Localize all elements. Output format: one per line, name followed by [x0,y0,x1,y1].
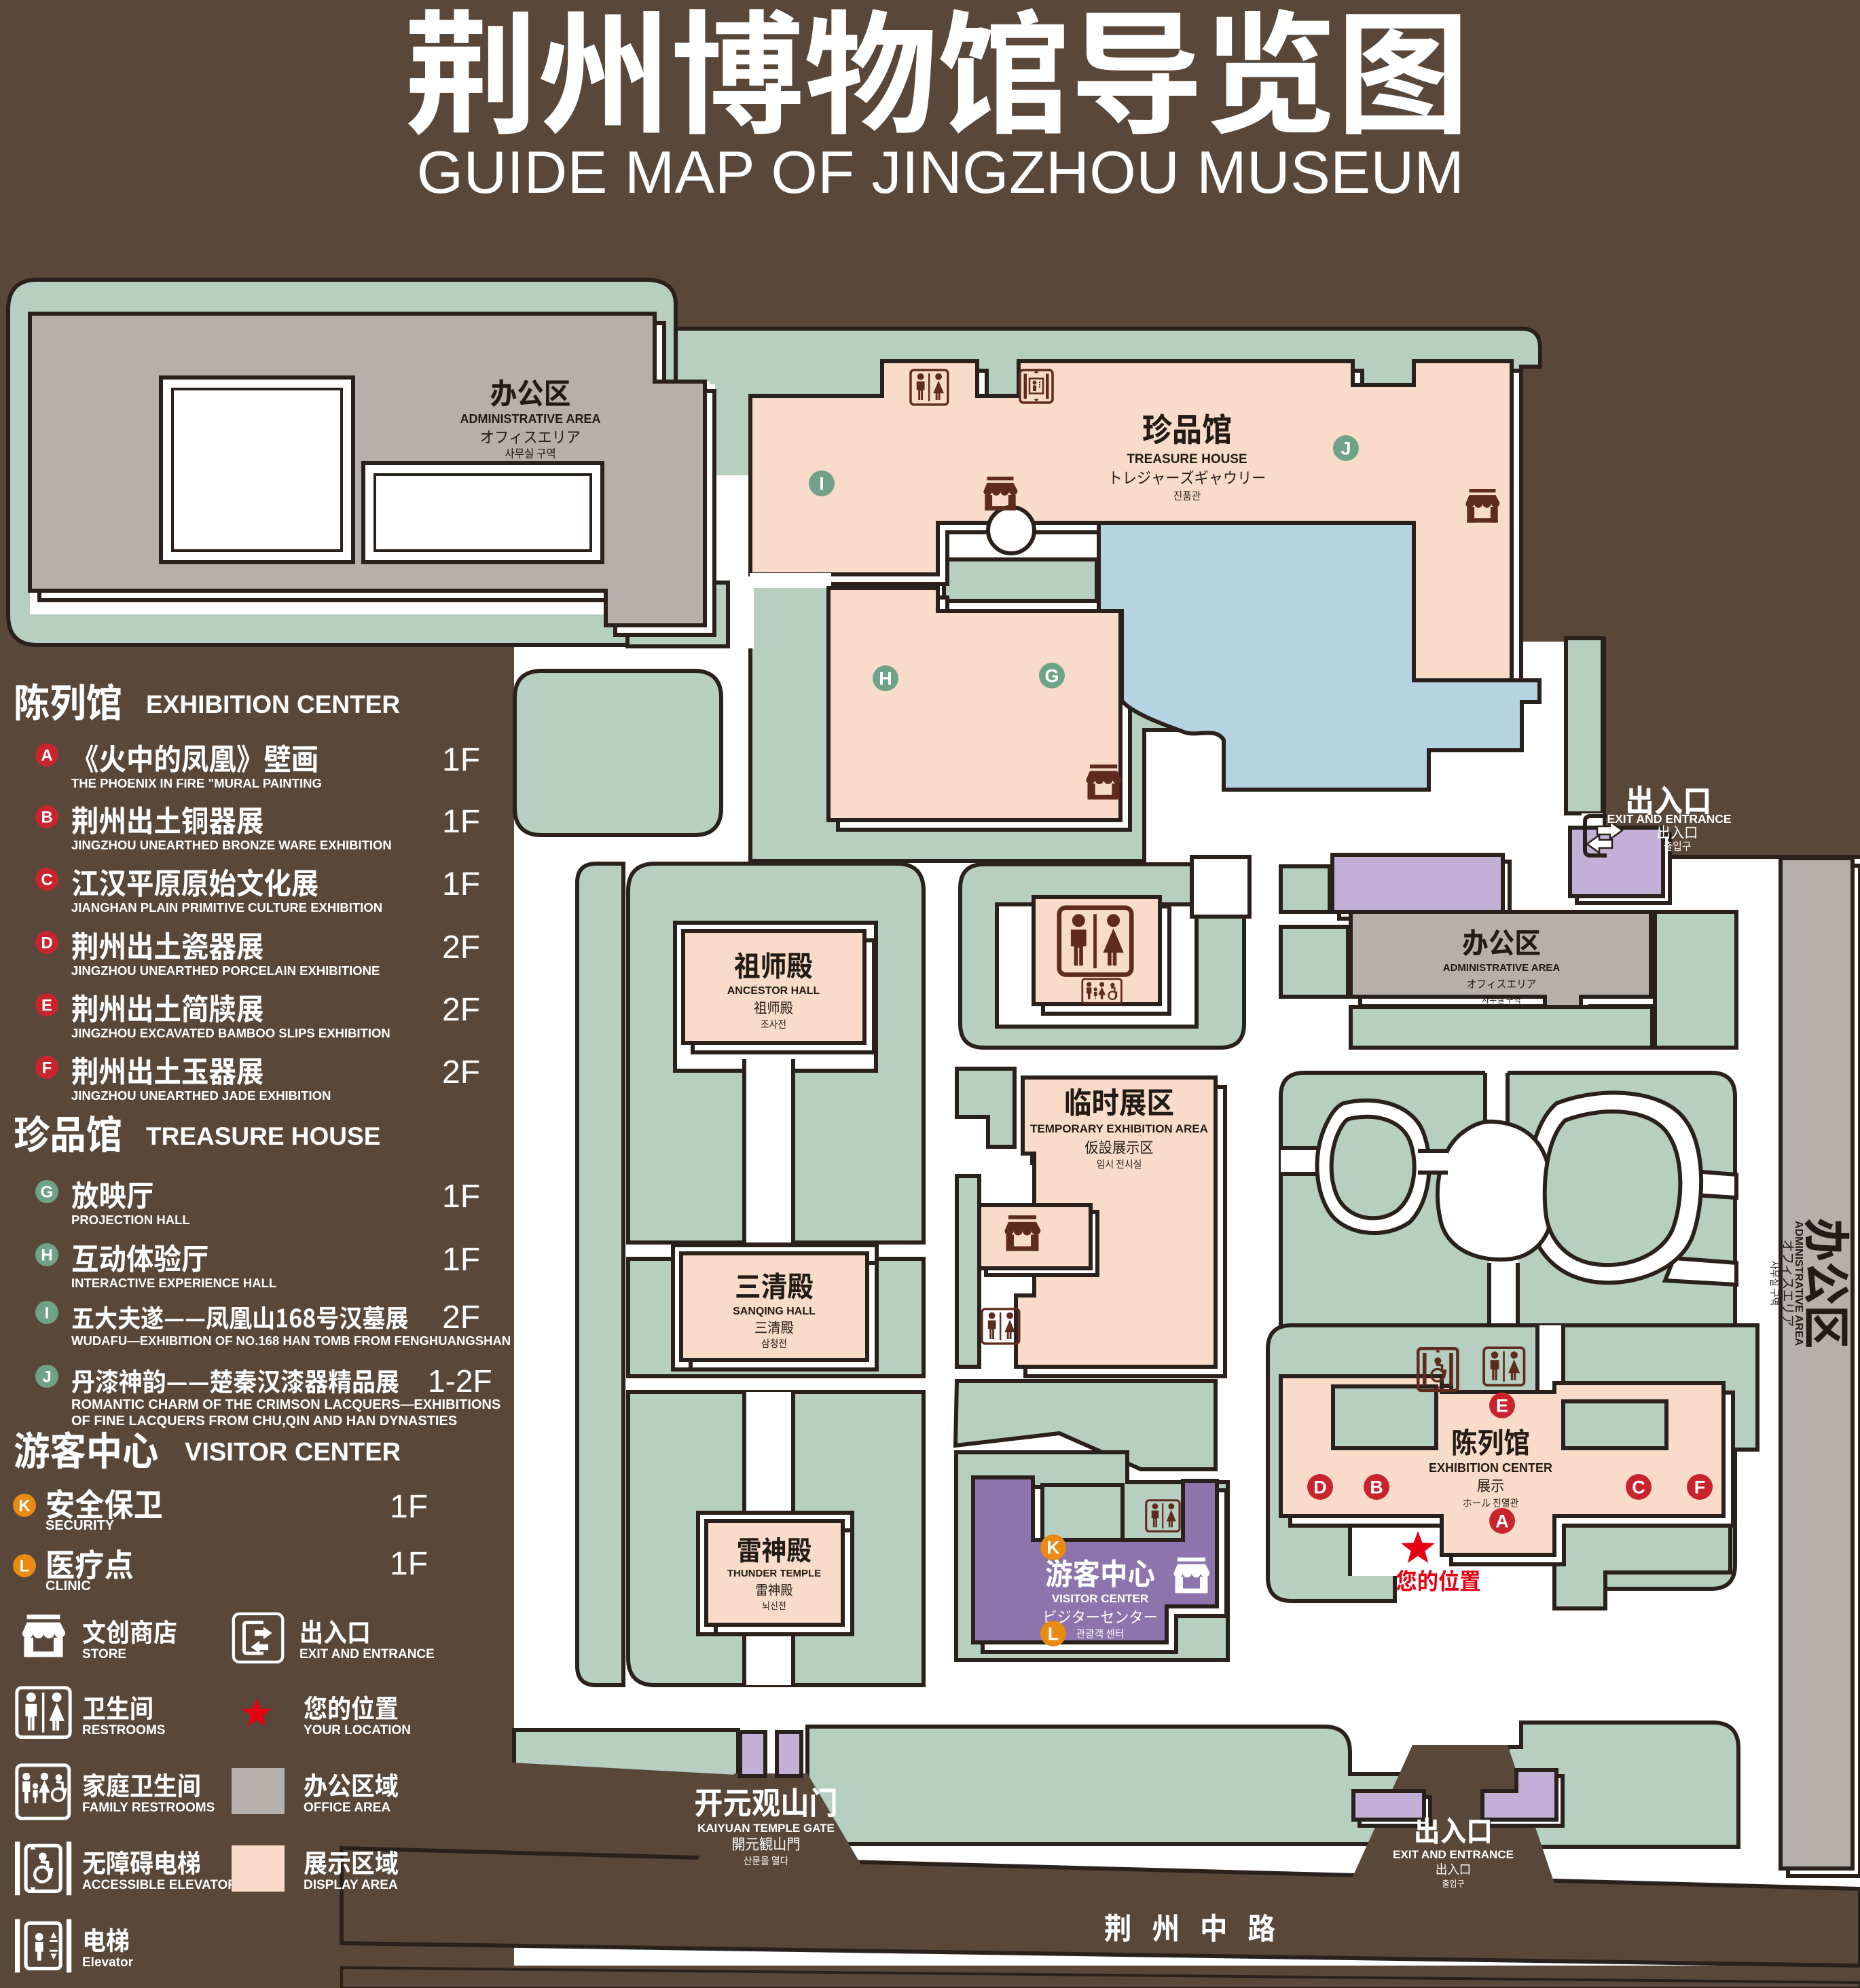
svg-text:K: K [18,1496,31,1515]
svg-text:YOUR LOCATION: YOUR LOCATION [304,1723,411,1737]
svg-text:EXIT AND ENTRANCE: EXIT AND ENTRANCE [1393,1848,1514,1861]
svg-text:I: I [45,1304,50,1322]
svg-text:ADMINISTRATIVE AREA: ADMINISTRATIVE AREA [460,412,601,426]
svg-text:JINGZHOU UNEARTHED BRONZE WARE: JINGZHOU UNEARTHED BRONZE WARE EXHIBITIO… [71,838,392,852]
svg-text:ACCESSIBLE ELEVATOR: ACCESSIBLE ELEVATOR [82,1878,237,1892]
svg-text:F: F [42,1059,52,1077]
svg-text:STORE: STORE [82,1647,126,1661]
svg-text:1F: 1F [442,1179,480,1215]
svg-text:EXIT AND ENTRANCE: EXIT AND ENTRANCE [299,1647,435,1661]
svg-text:RESTROOMS: RESTROOMS [82,1723,165,1737]
svg-text:ADMINISTRATIVE AREA: ADMINISTRATIVE AREA [1443,962,1561,974]
svg-text:THUNDER TEMPLE: THUNDER TEMPLE [727,1568,821,1579]
svg-text:TEMPORARY EXHIBITION AREA: TEMPORARY EXHIBITION AREA [1030,1122,1208,1135]
svg-text:KAIYUAN TEMPLE GATE: KAIYUAN TEMPLE GATE [697,1822,835,1835]
svg-text:JIANGHAN PLAIN PRIMITIVE CULTU: JIANGHAN PLAIN PRIMITIVE CULTURE EXHIBIT… [71,900,382,915]
svg-text:OFFICE AREA: OFFICE AREA [304,1801,390,1815]
svg-text:INTERACTIVE EXPERIENCE HALL: INTERACTIVE EXPERIENCE HALL [71,1276,276,1290]
svg-text:H: H [879,668,892,688]
svg-text:ANCESTOR HALL: ANCESTOR HALL [727,985,820,997]
svg-text:2F: 2F [442,992,480,1028]
svg-text:ROMANTIC CHARM OF THE CRIMSON: ROMANTIC CHARM OF THE CRIMSON LACQUERS—E… [71,1397,500,1412]
svg-text:WUDAFU—EXHIBITION OF NO.168 HA: WUDAFU—EXHIBITION OF NO.168 HAN TOMB FRO… [71,1333,511,1348]
svg-text:G: G [1044,665,1059,686]
svg-text:JINGZHOU UNEARTHED PORCELAIN E: JINGZHOU UNEARTHED PORCELAIN EXHIBITIONE [71,963,380,978]
svg-text:JINGZHOU EXCAVATED BAMBOO SLIP: JINGZHOU EXCAVATED BAMBOO SLIPS EXHIBITI… [71,1026,390,1040]
svg-text:Elevator: Elevator [82,1955,134,1970]
svg-text:L: L [1048,1623,1059,1644]
svg-text:SECURITY: SECURITY [45,1518,115,1533]
svg-text:1F: 1F [442,742,480,778]
svg-text:J: J [42,1367,51,1386]
svg-text:A: A [1495,1511,1509,1531]
svg-text:SANQING HALL: SANQING HALL [733,1306,816,1317]
svg-text:1F: 1F [442,866,480,902]
svg-text:1-2F: 1-2F [428,1363,492,1399]
svg-text:1F: 1F [390,1489,428,1525]
svg-text:PROJECTION HALL: PROJECTION HALL [71,1213,190,1227]
svg-text:TREASURE HOUSE: TREASURE HOUSE [1127,452,1247,466]
svg-text:THE PHOENIX IN FIRE "MURAL PAI: THE PHOENIX IN FIRE "MURAL PAINTING [71,776,322,790]
svg-text:GUIDE MAP OF JINGZHOU MUSEUM: GUIDE MAP OF JINGZHOU MUSEUM [417,139,1465,206]
svg-text:L: L [20,1557,30,1575]
svg-text:F: F [1694,1477,1706,1497]
svg-text:1F: 1F [390,1546,428,1582]
svg-text:ADMINISTRATIVE AREA: ADMINISTRATIVE AREA [1793,1221,1804,1346]
svg-text:H: H [41,1246,52,1264]
svg-text:2F: 2F [442,929,480,965]
svg-text:J: J [1341,438,1351,458]
svg-text:2F: 2F [442,1300,480,1336]
svg-text:EXHIBITION CENTER: EXHIBITION CENTER [146,691,400,718]
svg-text:OF FINE LACQUERS FROM CHU,QIN: OF FINE LACQUERS FROM CHU,QIN AND HAN DY… [71,1414,457,1429]
svg-text:TREASURE HOUSE: TREASURE HOUSE [146,1122,380,1150]
svg-text:K: K [1046,1537,1060,1558]
svg-text:G: G [41,1183,54,1201]
svg-text:A: A [41,746,52,765]
svg-text:E: E [1496,1395,1508,1416]
svg-text:VISITOR CENTER: VISITOR CENTER [1052,1592,1148,1605]
svg-text:B: B [41,808,52,826]
svg-text:1F: 1F [442,1242,480,1278]
svg-text:B: B [1370,1477,1383,1497]
svg-text:VISITOR CENTER: VISITOR CENTER [185,1438,401,1467]
svg-text:1F: 1F [442,804,480,840]
svg-text:DISPLAY AREA: DISPLAY AREA [304,1878,398,1892]
svg-text:E: E [41,996,52,1014]
svg-text:C: C [1632,1477,1645,1497]
svg-text:I: I [819,473,824,494]
svg-text:CLINIC: CLINIC [45,1579,91,1594]
svg-text:2F: 2F [442,1054,480,1090]
svg-text:EXHIBITION CENTER: EXHIBITION CENTER [1429,1461,1552,1475]
svg-text:D: D [41,934,52,952]
svg-text:C: C [41,870,52,889]
svg-text:FAMILY RESTROOMS: FAMILY RESTROOMS [82,1801,215,1815]
svg-text:JINGZHOU UNEARTHED JADE EXHIBI: JINGZHOU UNEARTHED JADE EXHIBITION [71,1088,331,1103]
svg-text:D: D [1313,1477,1327,1497]
svg-text:EXIT AND ENTRANCE: EXIT AND ENTRANCE [1607,812,1731,826]
